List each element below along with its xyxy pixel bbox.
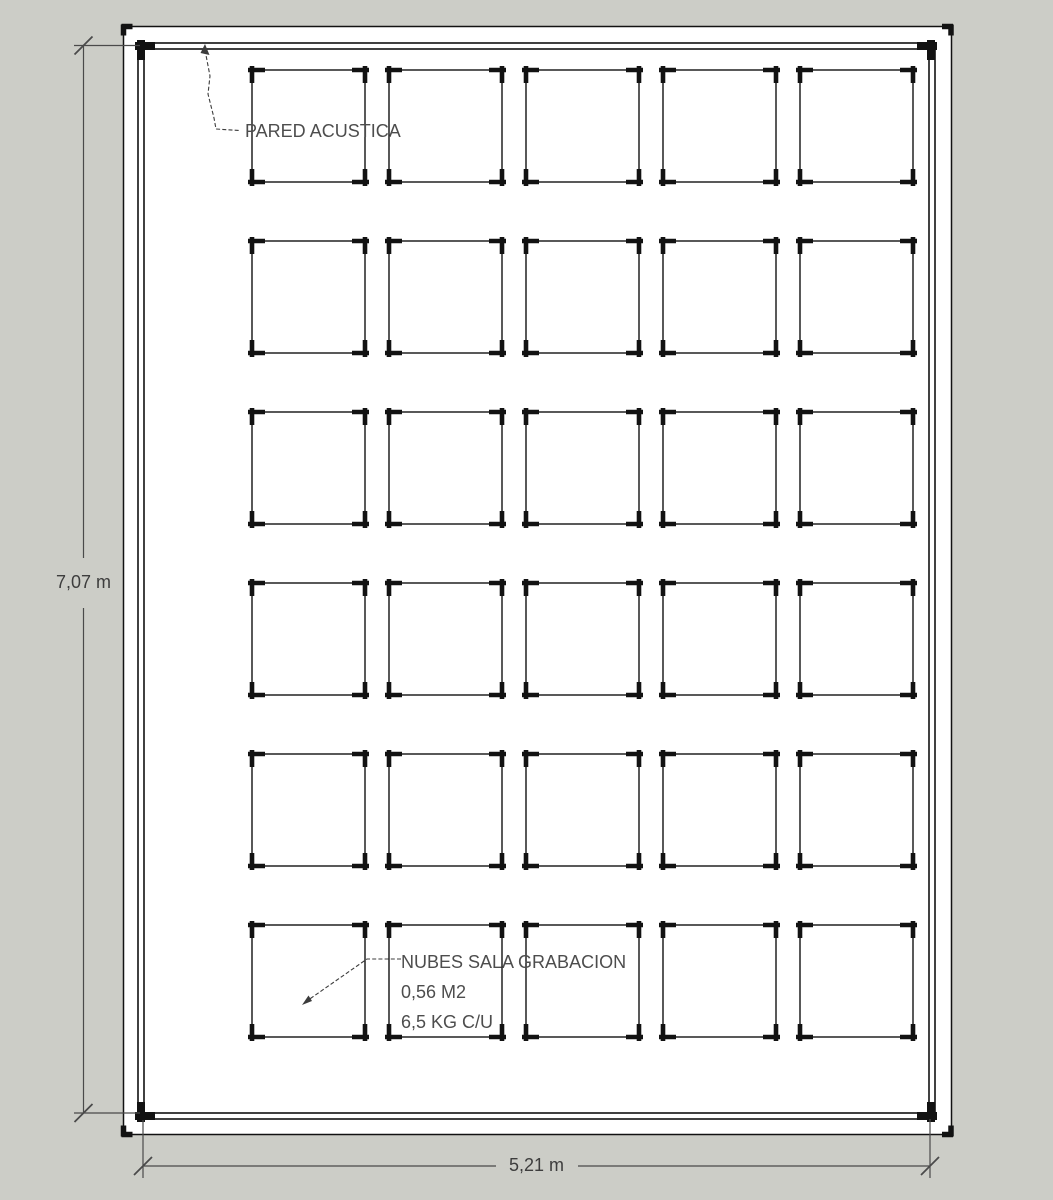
cloud-panel [522,237,643,357]
cloud-panel [385,237,506,357]
cloud-panel [796,237,917,357]
cloud-panel [248,237,369,357]
cloud-panel [248,750,369,870]
cloud-panel [522,66,643,186]
cloud-panel [522,408,643,528]
cloud-annotation: NUBES SALA GRABACION 0,56 M2 6,5 KG C/U [401,947,626,1037]
cloud-panel [522,750,643,870]
cloud-annotation-area: 0,56 M2 [401,977,626,1007]
cloud-panel [385,750,506,870]
cloud-panel [659,750,780,870]
cloud-panel [248,579,369,699]
dimension-height-label: 7,07 m [36,572,131,593]
cloud-panel [659,921,780,1041]
cloud-panel [659,237,780,357]
cloud-panel [796,408,917,528]
cloud-panel [796,750,917,870]
cloud-panel [659,66,780,186]
dimension-width-label: 5,21 m [489,1155,584,1176]
cloud-annotation-weight: 6,5 KG C/U [401,1007,626,1037]
cloud-panel [796,66,917,186]
wall-acoustic-label: PARED ACUSTICA [245,121,401,142]
cloud-panel [385,66,506,186]
cloud-annotation-title: NUBES SALA GRABACION [401,947,626,977]
cloud-panel [385,408,506,528]
cloud-panel [796,579,917,699]
drawing-viewport: 7,07 m 5,21 m PARED ACUSTICA NUBES SALA … [0,0,1053,1200]
cloud-panel [248,408,369,528]
cloud-panel [659,579,780,699]
cloud-panel [385,579,506,699]
cloud-panel [248,921,369,1041]
cloud-panel [796,921,917,1041]
cloud-panel [659,408,780,528]
cloud-panel [522,579,643,699]
